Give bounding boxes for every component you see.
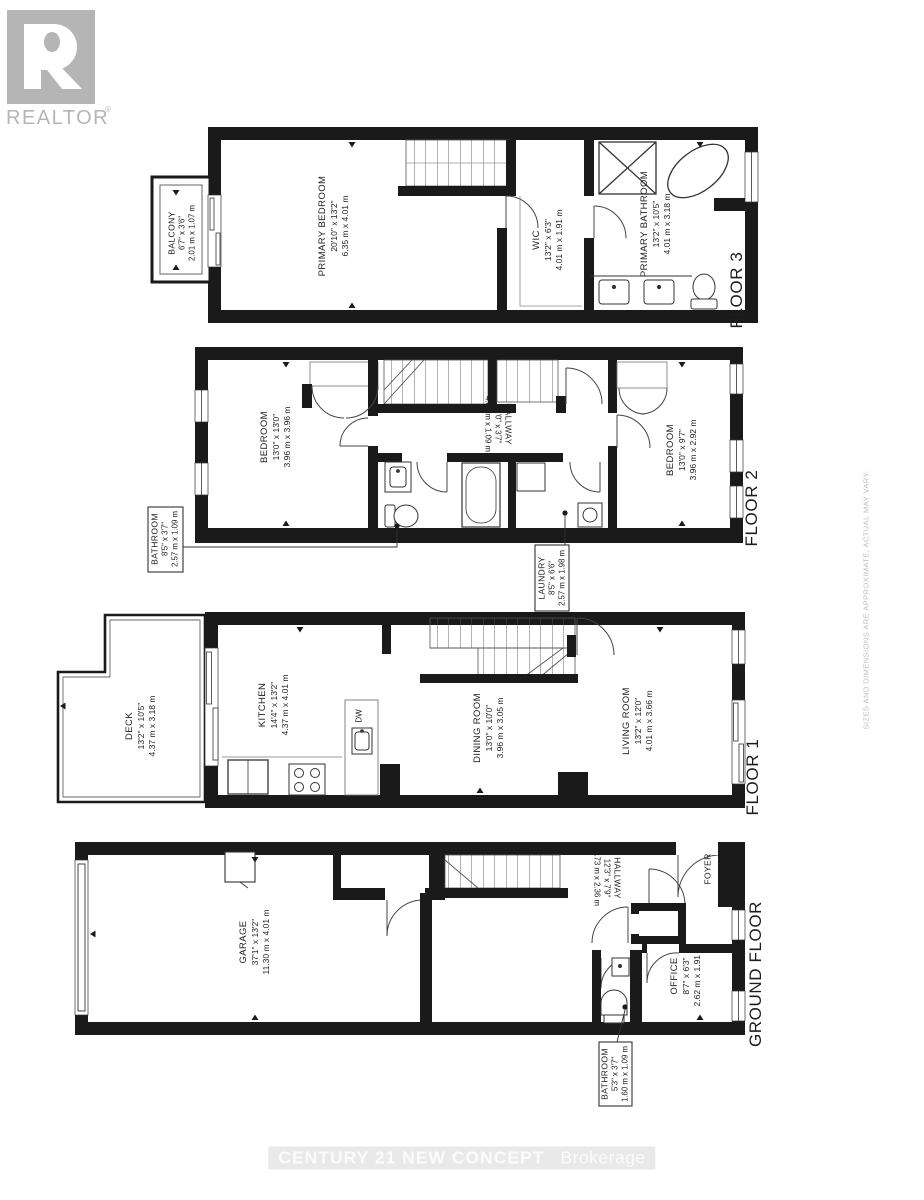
room-label-kitchen: KITCHEN 14'4" x 13'2" 4.37 m x 4.01 m [257, 675, 291, 736]
room-label-foyer: FOYER [702, 853, 713, 884]
vanity-icon [385, 462, 411, 492]
fridge-icon [228, 760, 268, 794]
disclaimer-text: SIZES AND DIMENSIONS ARE APPROXIMATE, AC… [862, 470, 871, 729]
room-label-hallway-ground: HALLWAY 12'3" x 7'9" 3.73 m x 2.36 m [591, 850, 622, 906]
utility-icon [225, 852, 255, 882]
room-label-hallway-floor2: HALLWAY 16'0" x 3'7" 4.88 m x 1.09 m [482, 396, 513, 452]
room-label-balcony: BALCONY 6'7" x 3'6" 2.01 m x 1.07 m [166, 205, 197, 261]
room-label-bedroom-left: BEDROOM 13'0" x 13'0" 3.96 m x 3.96 m [259, 407, 293, 468]
floor1-label: FLOOR 1 [743, 739, 763, 816]
floor2-label: FLOOR 2 [742, 470, 762, 547]
bathtub-icon [462, 463, 500, 527]
callout-label-bathroom-ground: BATHROOM 5'3" x 3'7" 1.60 m x 1.09 m [599, 1046, 630, 1102]
room-label-primary-bathroom: PRIMARY BATHROOM 13'2" x 10'5" 4.01 m x … [639, 171, 673, 277]
room-label-dining-room: DINING ROOM 13'0" x 10'0" 3.96 m x 3.05 … [472, 693, 506, 763]
floor3-label: FLOOR 3 [727, 252, 747, 329]
room-label-wic: WIC 13'2" x 6'3" 4.01 m x 1.91 m [531, 210, 565, 271]
dishwasher-label: DW [355, 709, 364, 722]
room-label-living-room: LIVING ROOM 13'2" x 12'0" 4.01 m x 3.66 … [621, 687, 655, 755]
closet-room [631, 903, 686, 944]
ground-floor-label: GROUND FLOOR [746, 901, 766, 1047]
brokerage-suffix: Brokerage [560, 1148, 645, 1168]
stairs-floor2-icon [384, 360, 488, 404]
room-label-office: OFFICE 8'7" x 6'3" 2.62 m x 1.91 m [669, 946, 703, 1007]
room-label-garage: GARAGE 37'1" x 13'2" 11.30 m x 4.01 m [238, 909, 272, 974]
floorplan-sheet: REALTOR ® [0, 0, 924, 1200]
callout-label-laundry: LAUNDRY 8'5" x 6'6" 2.57 m x 1.98 m [536, 550, 567, 606]
ground-floor-plan [75, 842, 745, 1106]
stairs-floor3-icon [406, 140, 510, 186]
brokerage-watermark: CENTURY 21 NEW CONCEPTBrokerage [268, 1147, 655, 1170]
sink-icon [612, 958, 629, 976]
storage-room [333, 842, 445, 900]
toilet-icon [385, 505, 418, 527]
callout-label-bathroom-floor2: BATHROOM 8'5" x 3'7" 2.57 m x 1.09 m [149, 511, 180, 567]
floor2-plan [148, 347, 743, 611]
toilet-icon [691, 274, 717, 309]
room-label-deck: DECK 13'2" x 10'5" 4.37 m x 3.18 m [124, 696, 158, 757]
stairs-ground-icon [445, 855, 560, 888]
room-label-bedroom-right: BEDROOM 13'0" x 9'7" 3.96 m x 2.92 m [665, 420, 699, 481]
stove-icon [289, 764, 325, 795]
kitchen-sink-icon [352, 728, 372, 754]
floorplan-drawing [0, 0, 924, 1200]
room-label-primary-bedroom: PRIMARY BEDROOM 20'10" x 13'2" 6.35 m x … [317, 176, 351, 277]
brokerage-name: CENTURY 21 NEW CONCEPT [278, 1148, 544, 1168]
